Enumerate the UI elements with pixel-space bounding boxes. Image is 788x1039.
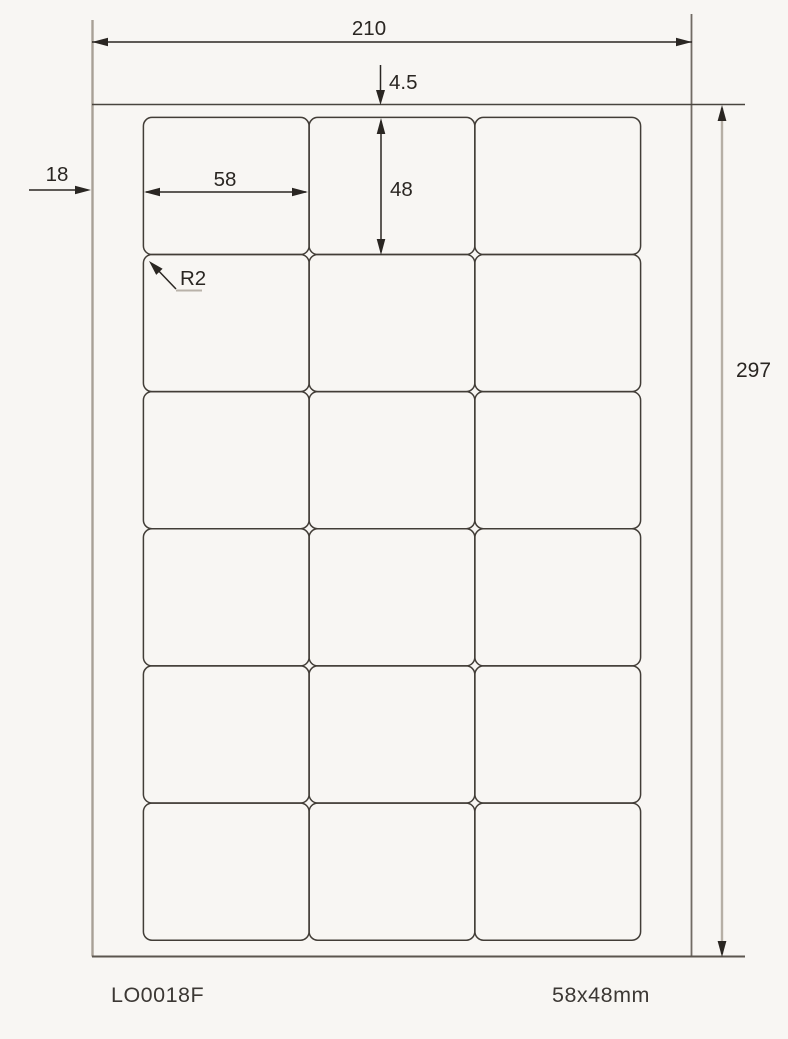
arrow-up-icon <box>718 105 727 121</box>
arrow-down-icon <box>377 239 386 255</box>
dim-page-height: 297 <box>718 105 771 957</box>
arrow-right-icon <box>292 188 308 197</box>
diagram-canvas: 210 4.5 18 58 48 <box>0 0 788 1039</box>
label-cell <box>475 529 641 666</box>
label-cell <box>309 392 475 529</box>
arrow-up-icon <box>377 118 386 134</box>
dim-top-margin: 4.5 <box>376 65 418 105</box>
label-cell <box>309 529 475 666</box>
sheet-outline <box>92 14 745 957</box>
arrow-down-icon <box>376 90 385 105</box>
label-sheet-diagram: 210 4.5 18 58 48 <box>0 0 788 1039</box>
dim-corner-radius-value: R2 <box>180 267 206 290</box>
callout-corner-radius: R2 <box>149 261 206 291</box>
product-code: LO0018F <box>111 983 204 1007</box>
dim-left-margin-value: 18 <box>46 163 69 186</box>
dim-page-width-value: 210 <box>352 17 386 40</box>
label-cell <box>143 666 309 803</box>
dim-top-margin-value: 4.5 <box>389 71 418 94</box>
dim-label-height-value: 48 <box>390 178 413 201</box>
label-cell <box>475 803 641 940</box>
label-cell <box>475 392 641 529</box>
label-cell <box>309 666 475 803</box>
arrow-right-icon <box>676 38 692 47</box>
label-cell <box>143 803 309 940</box>
label-grid <box>143 117 640 940</box>
arrow-left-icon <box>144 188 160 197</box>
label-size: 58x48mm <box>552 983 650 1007</box>
label-cell <box>143 255 309 392</box>
footer: LO0018F 58x48mm <box>111 983 650 1007</box>
label-cell <box>143 392 309 529</box>
label-cell <box>475 117 641 254</box>
arrow-right-icon <box>75 186 91 195</box>
arrow-left-icon <box>92 38 108 47</box>
dim-label-height: 48 <box>377 118 413 255</box>
dim-label-width-value: 58 <box>214 168 237 191</box>
dim-left-margin: 18 <box>29 163 91 194</box>
dim-page-width: 210 <box>92 17 692 46</box>
arrow-down-icon <box>718 941 727 957</box>
label-cell <box>475 255 641 392</box>
label-cell <box>309 803 475 940</box>
label-cell <box>309 255 475 392</box>
dim-page-height-value: 297 <box>736 359 771 382</box>
label-cell <box>475 666 641 803</box>
dim-label-width: 58 <box>144 168 308 196</box>
label-cell <box>143 529 309 666</box>
